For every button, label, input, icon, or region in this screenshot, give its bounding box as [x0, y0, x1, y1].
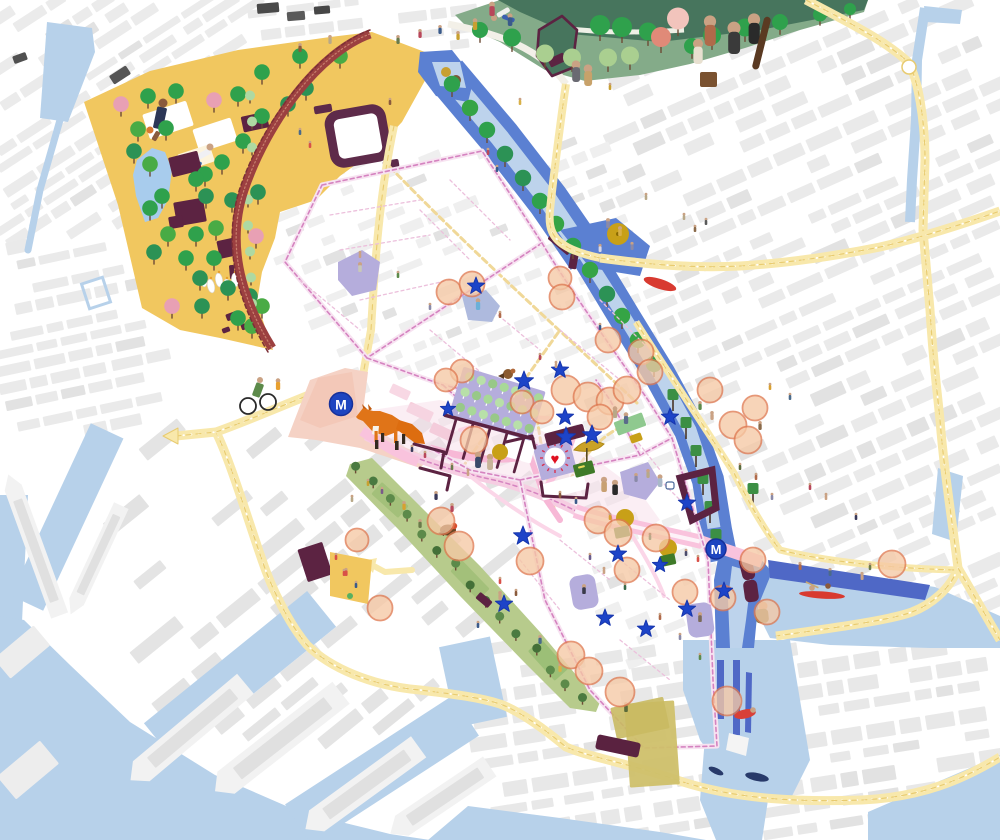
svg-text:M: M	[711, 542, 722, 557]
svg-text:M: M	[335, 397, 347, 413]
svg-text:♥: ♥	[551, 451, 560, 468]
